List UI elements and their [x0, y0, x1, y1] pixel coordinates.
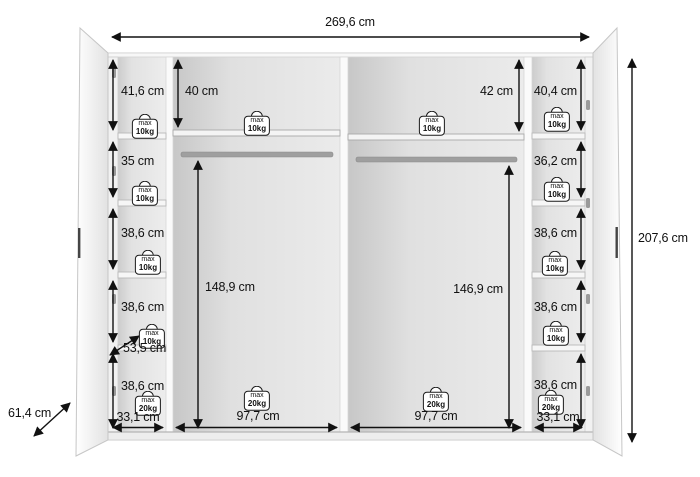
label-left-compartment-1: 41,6 cm [121, 84, 164, 98]
load-badge-10kg: max10kg [132, 114, 158, 139]
label-shelf-diagonal: 53,5 cm [123, 341, 166, 355]
label-right-compartment-1: 40,4 cm [528, 84, 577, 98]
divider-center [340, 57, 348, 432]
load-badge-10kg: max10kg [542, 251, 568, 276]
label-overall-height: 207,6 cm [638, 231, 688, 245]
right-door [593, 28, 622, 456]
divider-left [166, 57, 173, 432]
label-right-bottom-width: 33,1 cm [530, 410, 586, 424]
wardrobe-drawing [0, 0, 700, 477]
label-center-right-width: 97,7 cm [384, 409, 488, 423]
label-left-compartment-2: 35 cm [121, 154, 154, 168]
load-badge-10kg: max10kg [132, 181, 158, 206]
label-left-compartment-3: 38,6 cm [121, 226, 164, 240]
right-door-handle [616, 227, 618, 258]
load-badge-10kg: max10kg [544, 177, 570, 202]
load-badge-10kg: max10kg [135, 250, 161, 275]
bottom-board [108, 432, 593, 440]
load-badge-20kg: max20kg [244, 386, 270, 411]
load-badge-10kg: max10kg [543, 321, 569, 346]
label-right-compartment-3: 38,6 cm [528, 226, 577, 240]
label-center-left-hang: 148,9 cm [205, 280, 255, 294]
label-left-compartment-5: 38,6 cm [121, 379, 164, 393]
wardrobe-dimension-diagram: 269,6 cm 207,6 cm 61,4 cm 41,6 cm 35 cm … [0, 0, 700, 477]
load-badge-20kg: max20kg [423, 387, 449, 412]
load-badge-10kg: max10kg [419, 111, 445, 136]
label-right-compartment-4: 38,6 cm [528, 300, 577, 314]
load-badge-10kg: max10kg [244, 111, 270, 136]
left-door [76, 28, 108, 456]
label-overall-width: 269,6 cm [290, 15, 410, 29]
label-right-compartment-5: 38,6 cm [528, 378, 577, 392]
clothes-rail-right [356, 157, 517, 162]
label-center-right-hang: 146,9 cm [444, 282, 503, 296]
label-left-compartment-4: 38,6 cm [121, 300, 164, 314]
label-right-compartment-2: 36,2 cm [528, 154, 577, 168]
label-depth: 61,4 cm [8, 406, 51, 420]
wardrobe-carcass [108, 53, 593, 440]
load-badge-10kg: max10kg [544, 107, 570, 132]
left-door-handle [78, 228, 80, 258]
clothes-rail-left [181, 152, 333, 157]
label-center-right-top: 42 cm [468, 84, 513, 98]
label-center-left-top: 40 cm [185, 84, 218, 98]
divider-right [524, 57, 532, 432]
label-left-bottom-width: 33,1 cm [109, 410, 167, 424]
label-center-left-width: 97,7 cm [206, 409, 310, 423]
